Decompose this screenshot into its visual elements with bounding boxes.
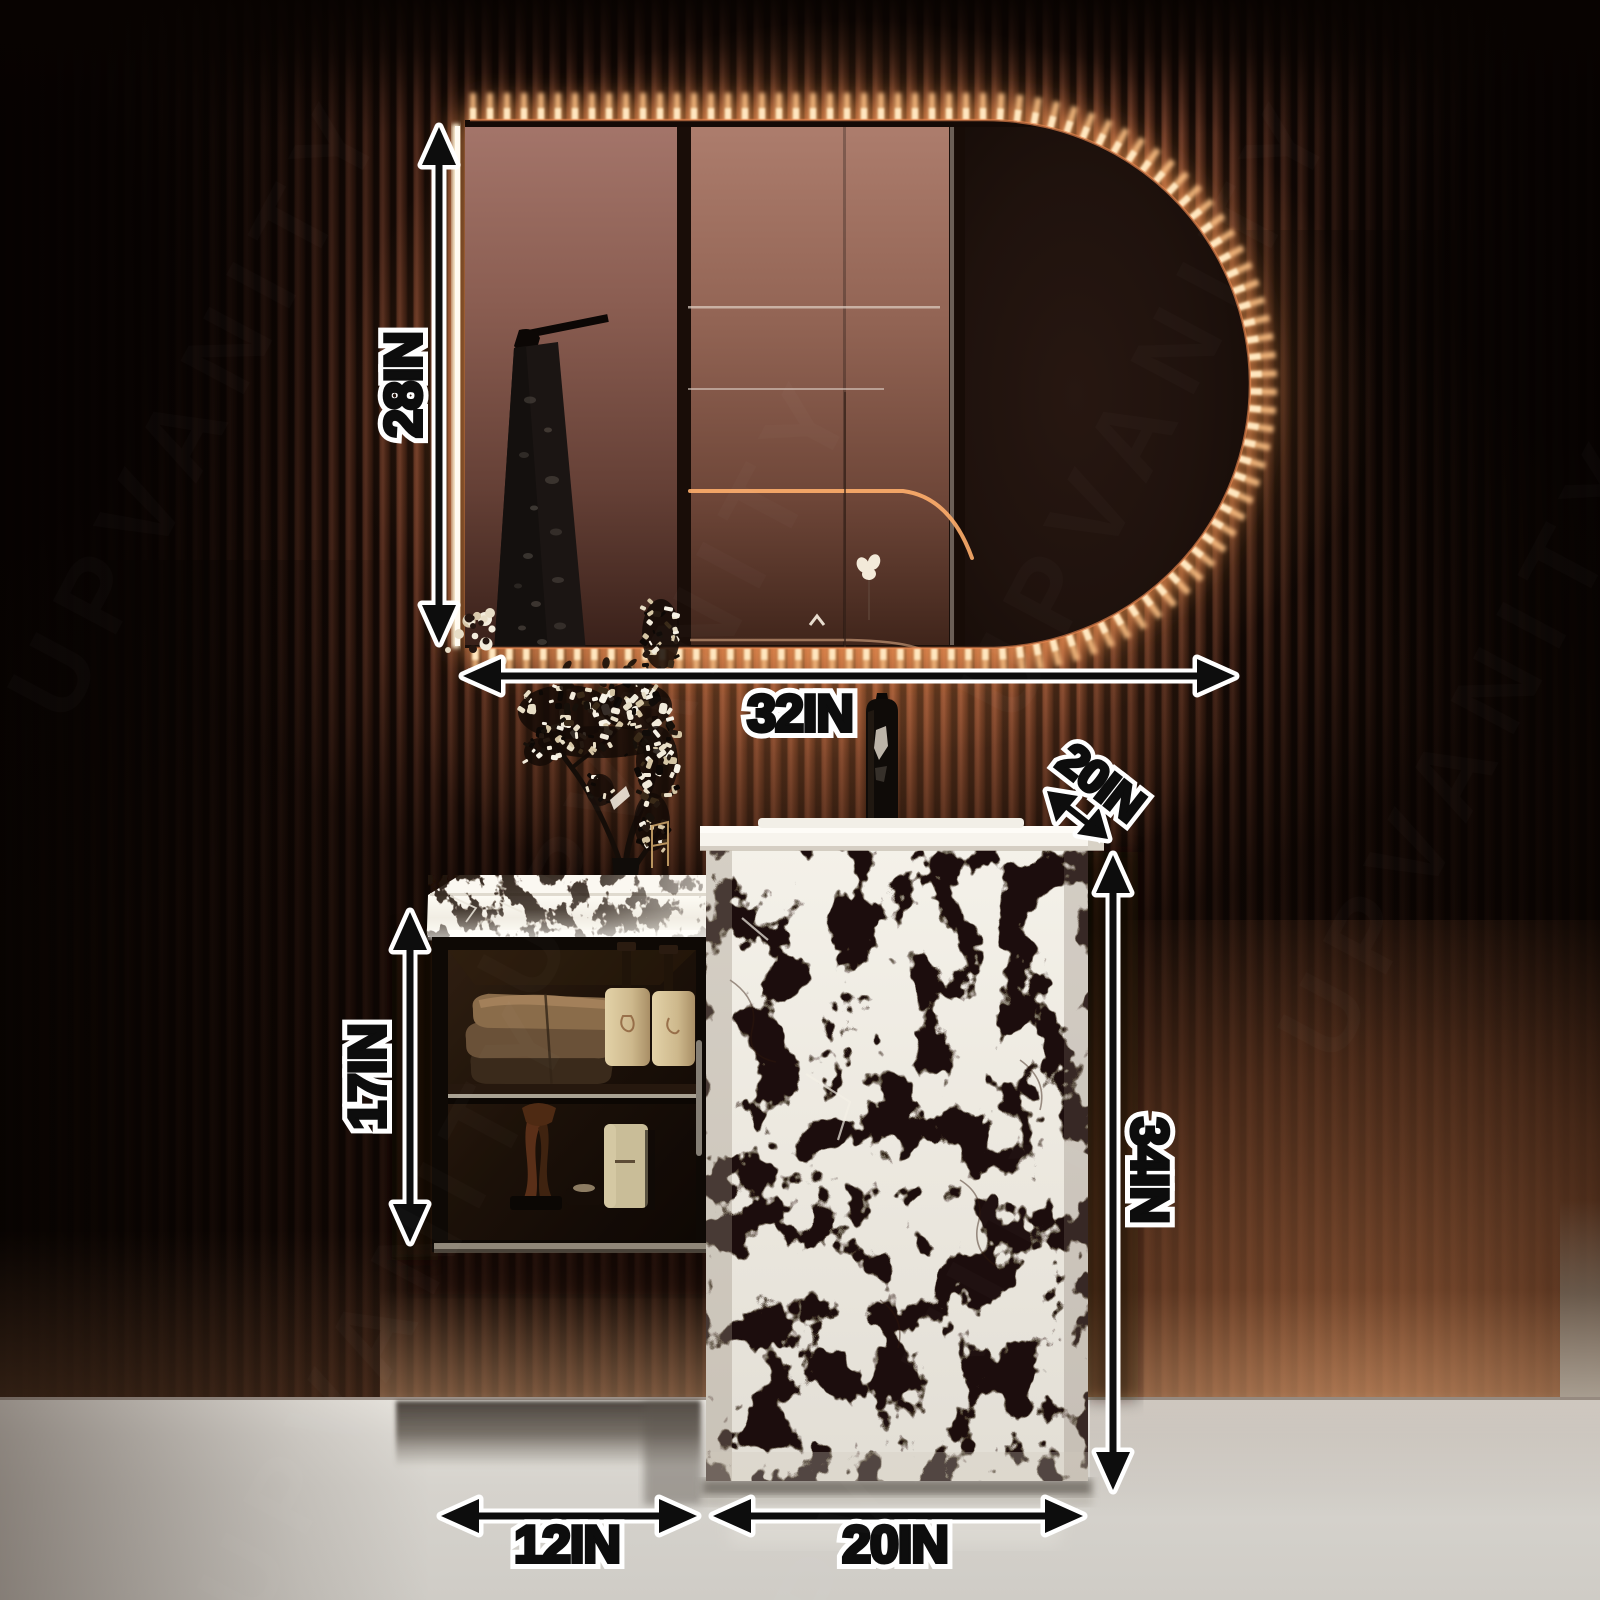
svg-text:32IN: 32IN: [747, 685, 853, 743]
svg-text:28IN: 28IN: [375, 332, 433, 438]
svg-text:12IN: 12IN: [514, 1516, 620, 1574]
svg-text:34IN: 34IN: [1120, 1117, 1178, 1223]
svg-text:17IN: 17IN: [339, 1024, 397, 1130]
